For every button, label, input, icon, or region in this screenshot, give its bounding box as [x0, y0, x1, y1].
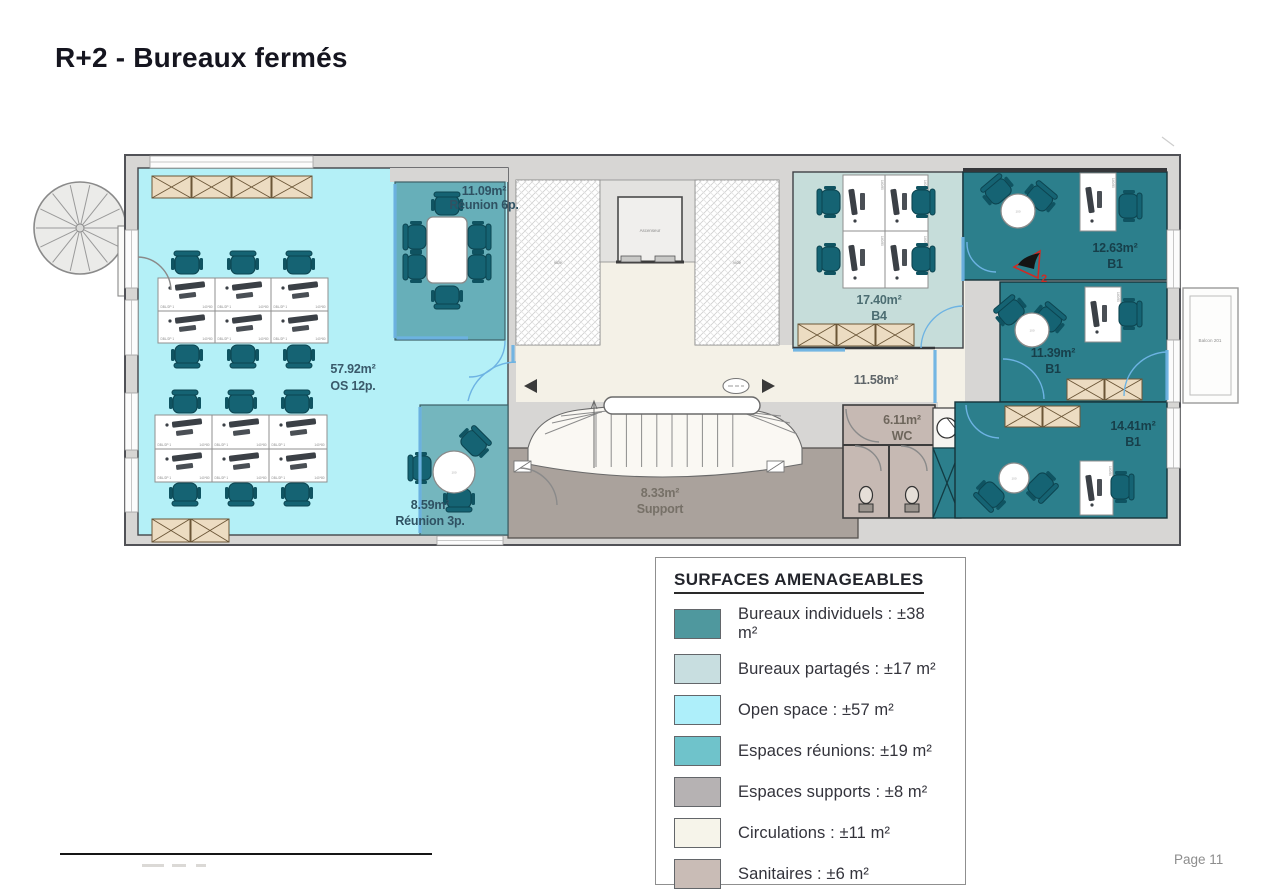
svg-text:140/80: 140/80 — [880, 180, 884, 190]
chair — [169, 483, 201, 506]
legend-swatch — [674, 777, 721, 807]
desk: DBL/2P 1140*80 — [158, 311, 215, 343]
photo-marker-number: 2 — [1041, 273, 1047, 285]
legend-label: Espaces réunions: ±19 m² — [738, 742, 932, 761]
legend-rows: Bureaux individuels : ±38 m²Bureaux part… — [674, 605, 947, 889]
desk: DBL/2P 1140*80 — [212, 449, 269, 482]
desk: DBL/2P 1140*80 — [269, 415, 327, 449]
reunion6-area: 11.09m² — [462, 184, 507, 198]
desk: DBL/2P 1140*80 — [212, 415, 269, 449]
chair — [468, 251, 491, 283]
reunion6-name: Réunion 6p. — [449, 198, 518, 212]
chair — [1119, 298, 1142, 330]
desk: 140/80 — [1080, 173, 1116, 231]
legend-title: SURFACES AMENAGEABLES — [674, 570, 924, 594]
desk: DBL/2P 1140*80 — [271, 311, 328, 343]
svg-text:140*80: 140*80 — [314, 443, 324, 447]
chair — [225, 390, 257, 413]
elevator-label: Ascenseur — [640, 228, 661, 233]
b4-name: B4 — [871, 309, 887, 323]
radiator — [837, 324, 875, 346]
legend-swatch — [674, 695, 721, 725]
desk-label: DBL/2P 1 — [218, 337, 232, 341]
chair — [283, 345, 315, 368]
wc-name: WC — [892, 429, 913, 443]
legend-label: Bureaux individuels : ±38 m² — [738, 605, 947, 643]
desk-label: DBL/2P 1 — [272, 476, 286, 480]
chair — [817, 186, 840, 218]
round-table: 100 — [999, 463, 1029, 493]
support-name: Support — [637, 502, 685, 516]
svg-text:140*80: 140*80 — [315, 337, 325, 341]
desk-label: DBL/2P 1 — [158, 443, 172, 447]
desk-label: DBL/2P 1 — [161, 305, 175, 309]
radiator — [1067, 379, 1104, 400]
b1-mid-area: 11.39m² — [1031, 346, 1076, 360]
legend-label: Sanitaires : ±6 m² — [738, 865, 869, 884]
wall-segment — [390, 168, 508, 182]
chair — [169, 390, 201, 413]
legend-item-bureaux-individuels: Bureaux individuels : ±38 m² — [674, 605, 947, 643]
desk-label: DBL/2P 1 — [215, 443, 229, 447]
chair — [227, 251, 259, 274]
footer-faint-text — [172, 864, 186, 867]
desk: DBL/2P 1140*80 — [155, 449, 212, 482]
footer-faint-text — [196, 864, 206, 867]
radiator — [1105, 379, 1142, 400]
b4-area: 17.40m² — [856, 293, 901, 307]
chair — [817, 243, 840, 275]
open-space-area: 57.92m² — [330, 362, 375, 376]
chair — [403, 221, 426, 253]
svg-text:140*80: 140*80 — [314, 476, 324, 480]
radiator — [152, 176, 191, 198]
svg-text:140*80: 140*80 — [202, 305, 212, 309]
svg-text:140*80: 140*80 — [199, 476, 209, 480]
chair — [283, 251, 315, 274]
balcony-label: Balcon 201 — [1199, 338, 1222, 343]
b1-mid-name: B1 — [1045, 362, 1061, 376]
stair-handrail — [604, 397, 760, 414]
desk-label: DBL/2P 1 — [158, 476, 172, 480]
legend-item-open-space: Open space : ±57 m² — [674, 695, 947, 725]
desk: 140/80 — [843, 175, 885, 231]
circulation-area: 11.58m² — [854, 373, 899, 387]
svg-text:140*80: 140*80 — [199, 443, 209, 447]
chair — [1111, 471, 1134, 503]
svg-text:100: 100 — [1029, 329, 1034, 333]
b1-top-name: B1 — [1107, 257, 1123, 271]
void-label: vide — [554, 260, 563, 265]
toilet-icon — [859, 487, 873, 513]
radiator — [232, 176, 271, 198]
page: R+2 - Bureaux fermés — [0, 0, 1280, 891]
svg-text:140*80: 140*80 — [315, 305, 325, 309]
legend-item-sanitaires: Sanitaires : ±6 m² — [674, 859, 947, 889]
round-table: 100 — [1015, 313, 1049, 347]
corner-tick — [1162, 137, 1174, 146]
svg-text:140*80: 140*80 — [258, 305, 268, 309]
desk: 140/80 — [1085, 287, 1121, 342]
svg-text:140/80: 140/80 — [880, 236, 884, 246]
svg-text:140/80: 140/80 — [1116, 292, 1120, 302]
b1-top-area: 12.63m² — [1092, 241, 1137, 255]
void-label: vide — [733, 260, 742, 265]
desk-label: DBL/2P 1 — [274, 337, 288, 341]
chair — [281, 390, 313, 413]
floor-plan: vide vide Ascenseur — [0, 0, 1280, 891]
support-area: 8.33m² — [641, 486, 679, 500]
chair — [281, 483, 313, 506]
legend-label: Circulations : ±11 m² — [738, 824, 890, 843]
desk: DBL/2P 1140*80 — [155, 415, 212, 449]
chair — [431, 286, 463, 309]
radiator — [152, 519, 190, 542]
desk-label: DBL/2P 1 — [218, 305, 232, 309]
svg-text:140*80: 140*80 — [202, 337, 212, 341]
toilet-icon — [905, 487, 919, 513]
chair — [403, 251, 426, 283]
desk: DBL/2P 1140*80 — [215, 311, 271, 343]
radiator — [1043, 406, 1080, 427]
legend-item-bureaux-partages: Bureaux partagés : ±17 m² — [674, 654, 947, 684]
legend-label: Open space : ±57 m² — [738, 701, 894, 720]
svg-text:140/80: 140/80 — [1111, 178, 1115, 188]
open-space-name: OS 12p. — [330, 379, 375, 393]
chair — [1119, 190, 1142, 222]
footer-line — [60, 853, 432, 855]
desk: 140/80 — [1080, 461, 1113, 515]
radiator — [272, 176, 312, 198]
legend-swatch — [674, 654, 721, 684]
b1-bottom-area: 14.41m² — [1110, 419, 1155, 433]
round-table: 100 — [1001, 194, 1035, 228]
legend-item-espaces-supports: Espaces supports : ±8 m² — [674, 777, 947, 807]
round-table: 100 — [433, 451, 475, 493]
desk-label: DBL/2P 1 — [272, 443, 286, 447]
radiator — [191, 519, 229, 542]
desk: 140/80 — [843, 231, 885, 288]
footer-faint-text — [142, 864, 164, 867]
desk: DBL/2P 1140*80 — [158, 278, 215, 311]
elevator: Ascenseur — [600, 180, 695, 262]
legend-label: Bureaux partagés : ±17 m² — [738, 660, 936, 679]
legend-swatch — [674, 859, 721, 889]
svg-text:140*80: 140*80 — [256, 443, 266, 447]
legend-label: Espaces supports : ±8 m² — [738, 783, 927, 802]
chair — [171, 251, 203, 274]
chair — [468, 221, 491, 253]
legend-swatch — [674, 609, 721, 639]
meeting-table — [427, 217, 467, 283]
legend-panel: SURFACES AMENAGEABLES Bureaux individuel… — [655, 557, 966, 885]
svg-text:140*80: 140*80 — [258, 337, 268, 341]
legend-item-espaces-reunions: Espaces réunions: ±19 m² — [674, 736, 947, 766]
chair — [171, 345, 203, 368]
desk-label: DBL/2P 1 — [215, 476, 229, 480]
desk: DBL/2P 1140*80 — [215, 278, 271, 311]
radiator — [798, 324, 836, 346]
desk-label: DBL/2P 1 — [274, 305, 288, 309]
b1-bottom-name: B1 — [1125, 435, 1141, 449]
radiator — [1005, 406, 1042, 427]
chair — [912, 243, 935, 275]
chair — [912, 186, 935, 218]
svg-text:100: 100 — [451, 471, 456, 475]
reunion3-name: Réunion 3p. — [395, 514, 464, 528]
desk: DBL/2P 1140*80 — [269, 449, 327, 482]
legend-item-circulations: Circulations : ±11 m² — [674, 818, 947, 848]
radiator — [876, 324, 914, 346]
wc-area: 6.11m² — [883, 413, 921, 427]
legend-swatch — [674, 736, 721, 766]
legend-swatch — [674, 818, 721, 848]
svg-text:140/80: 140/80 — [1108, 466, 1112, 476]
svg-text:140*80: 140*80 — [256, 476, 266, 480]
desk-label: DBL/2P 1 — [161, 337, 175, 341]
svg-text:100: 100 — [1015, 210, 1020, 214]
chair — [225, 483, 257, 506]
svg-text:100: 100 — [1011, 477, 1016, 481]
reunion3-area: 8.59m² — [411, 498, 449, 512]
page-number: Page 11 — [1174, 852, 1223, 867]
desk: DBL/2P 1140*80 — [271, 278, 328, 311]
balcony: Balcon 201 — [1183, 288, 1238, 403]
chair — [227, 345, 259, 368]
radiator — [192, 176, 231, 198]
